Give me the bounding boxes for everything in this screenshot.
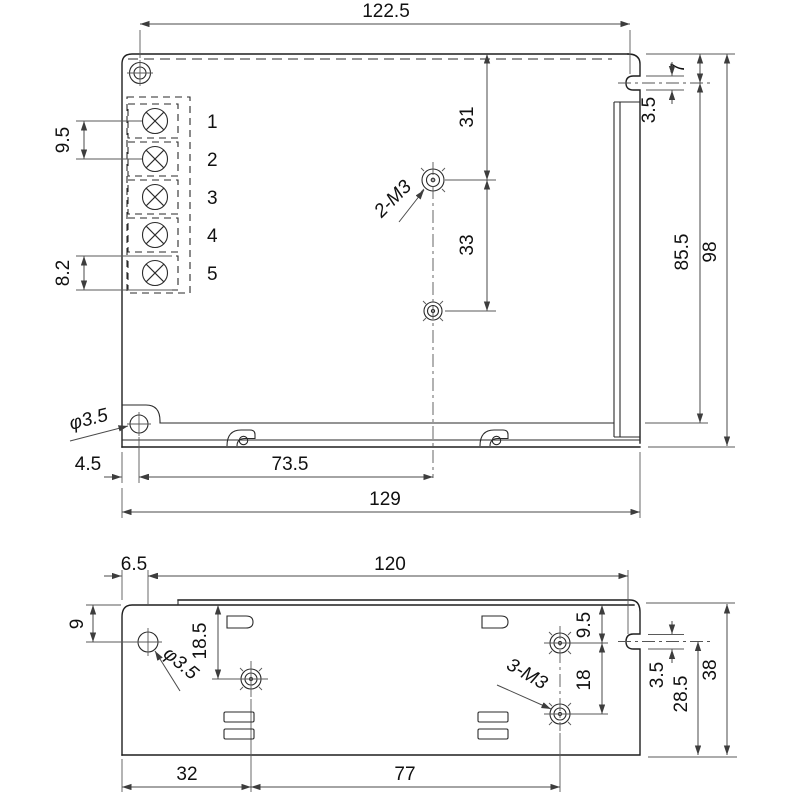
dim-stud-from-top-label: 31 — [457, 106, 478, 127]
dim-b-stud-left-x-label: 32 — [176, 764, 197, 785]
dim-b-hole-from-left-label: 6.5 — [121, 554, 147, 575]
bottom-mount-hole — [86, 570, 162, 656]
hole-callout-top-label: φ3.5 — [67, 405, 110, 435]
dim-width-top: 122.5 — [140, 1, 630, 74]
dim-case-width-label: 129 — [369, 489, 401, 510]
dim-b-slot-width-label: 3.5 — [647, 662, 668, 688]
dim-hole-to-stud: 73.5 — [139, 454, 433, 477]
dim-b-slot-to-bottom-label: 28.5 — [671, 676, 692, 713]
case-outline — [122, 54, 640, 447]
stud-holes — [421, 162, 445, 478]
terminal-label-4: 4 — [207, 226, 218, 247]
dim-b-slot-to-bottom: 28.5 — [671, 642, 698, 756]
terminal-screw-4 — [143, 223, 168, 248]
dim-slot-from-top-label: 7 — [668, 63, 689, 74]
hole-callout-top-view: φ3.5 — [67, 405, 128, 441]
bottom-left-mount-hole — [127, 412, 151, 436]
bottom-view: 6.5 120 9 φ3.5 18.5 9.5 18 — [67, 554, 737, 792]
dim-b-hole-from-top-label: 9 — [67, 619, 88, 630]
dim-slot-to-bottom: 85.5 — [618, 83, 710, 423]
dim-b-stud-spacing-x-label: 77 — [394, 764, 415, 785]
top-view: 1 2 3 4 5 122.5 — [53, 1, 735, 518]
stud-callout: 2-M3 — [370, 176, 424, 222]
bottom-vents — [224, 616, 508, 739]
dim-b-stud-right-spacing-label: 18 — [574, 669, 595, 690]
drawing-svg: 1 2 3 4 5 122.5 — [0, 0, 800, 800]
dim-terminal-pitch-label: 9.5 — [53, 127, 74, 153]
dim-terminal-height-label: 8.2 — [53, 260, 74, 286]
terminal-block: 1 2 3 4 5 — [127, 97, 218, 293]
terminal-label-2: 2 — [207, 150, 218, 171]
top-left-mount-hole — [127, 60, 153, 86]
dim-stud-spacing-label: 33 — [457, 234, 478, 255]
dim-b-stud-right-from-top-label: 9.5 — [574, 612, 595, 638]
dim-stud-from-top: 31 — [445, 54, 496, 180]
dim-width-top-label: 122.5 — [362, 1, 410, 22]
dim-case-width: 129 — [122, 452, 640, 518]
terminal-label-3: 3 — [207, 188, 218, 209]
terminal-screw-1 — [143, 109, 168, 134]
bottom-stud-callout-label: 3-M3 — [503, 654, 551, 694]
dim-terminal-height: 8.2 — [53, 256, 172, 290]
dim-hole-from-left: 4.5 — [75, 437, 157, 483]
dim-b-width-top: 120 — [148, 554, 628, 634]
stud-callout-label: 2-M3 — [370, 176, 416, 222]
dim-b-stud-right-from-top: 9.5 — [574, 605, 602, 643]
terminal-screw-5 — [143, 261, 168, 286]
hook-tab-right — [480, 430, 508, 446]
dim-b-stud-right-spacing: 18 — [574, 643, 602, 714]
dim-b-hole-from-top: 9 — [67, 605, 121, 642]
dim-hole-to-stud-label: 73.5 — [272, 454, 309, 475]
hook-tab-left — [227, 430, 255, 446]
dim-b-stud-left-from-top-label: 18.5 — [190, 623, 211, 660]
terminal-screw-3 — [143, 185, 168, 210]
terminal-screw-2 — [143, 147, 168, 172]
dim-case-height-label: 98 — [700, 241, 721, 262]
terminal-label-5: 5 — [207, 264, 218, 285]
dim-b-stud-spacing-x: 77 — [251, 764, 560, 787]
bottom-stud-callout: 3-M3 — [497, 654, 551, 709]
dim-b-width-top-label: 120 — [374, 554, 406, 575]
dim-b-height-label: 38 — [700, 659, 721, 680]
dim-slot-width-top-label: 3.5 — [639, 97, 660, 123]
dim-b-hole-from-left: 6.5 — [104, 554, 166, 600]
dim-stud-spacing: 33 — [445, 180, 496, 311]
terminal-label-1: 1 — [207, 112, 218, 133]
side-rail — [614, 102, 640, 437]
dim-terminal-pitch: 9.5 — [53, 121, 142, 159]
dim-b-stud-left-x: 32 — [122, 759, 251, 792]
mechanical-drawing: 1 2 3 4 5 122.5 — [0, 0, 800, 800]
dim-hole-from-left-label: 4.5 — [75, 454, 101, 475]
dim-slot-from-top: 7 — [668, 54, 700, 83]
dim-slot-to-bottom-label: 85.5 — [672, 234, 693, 271]
